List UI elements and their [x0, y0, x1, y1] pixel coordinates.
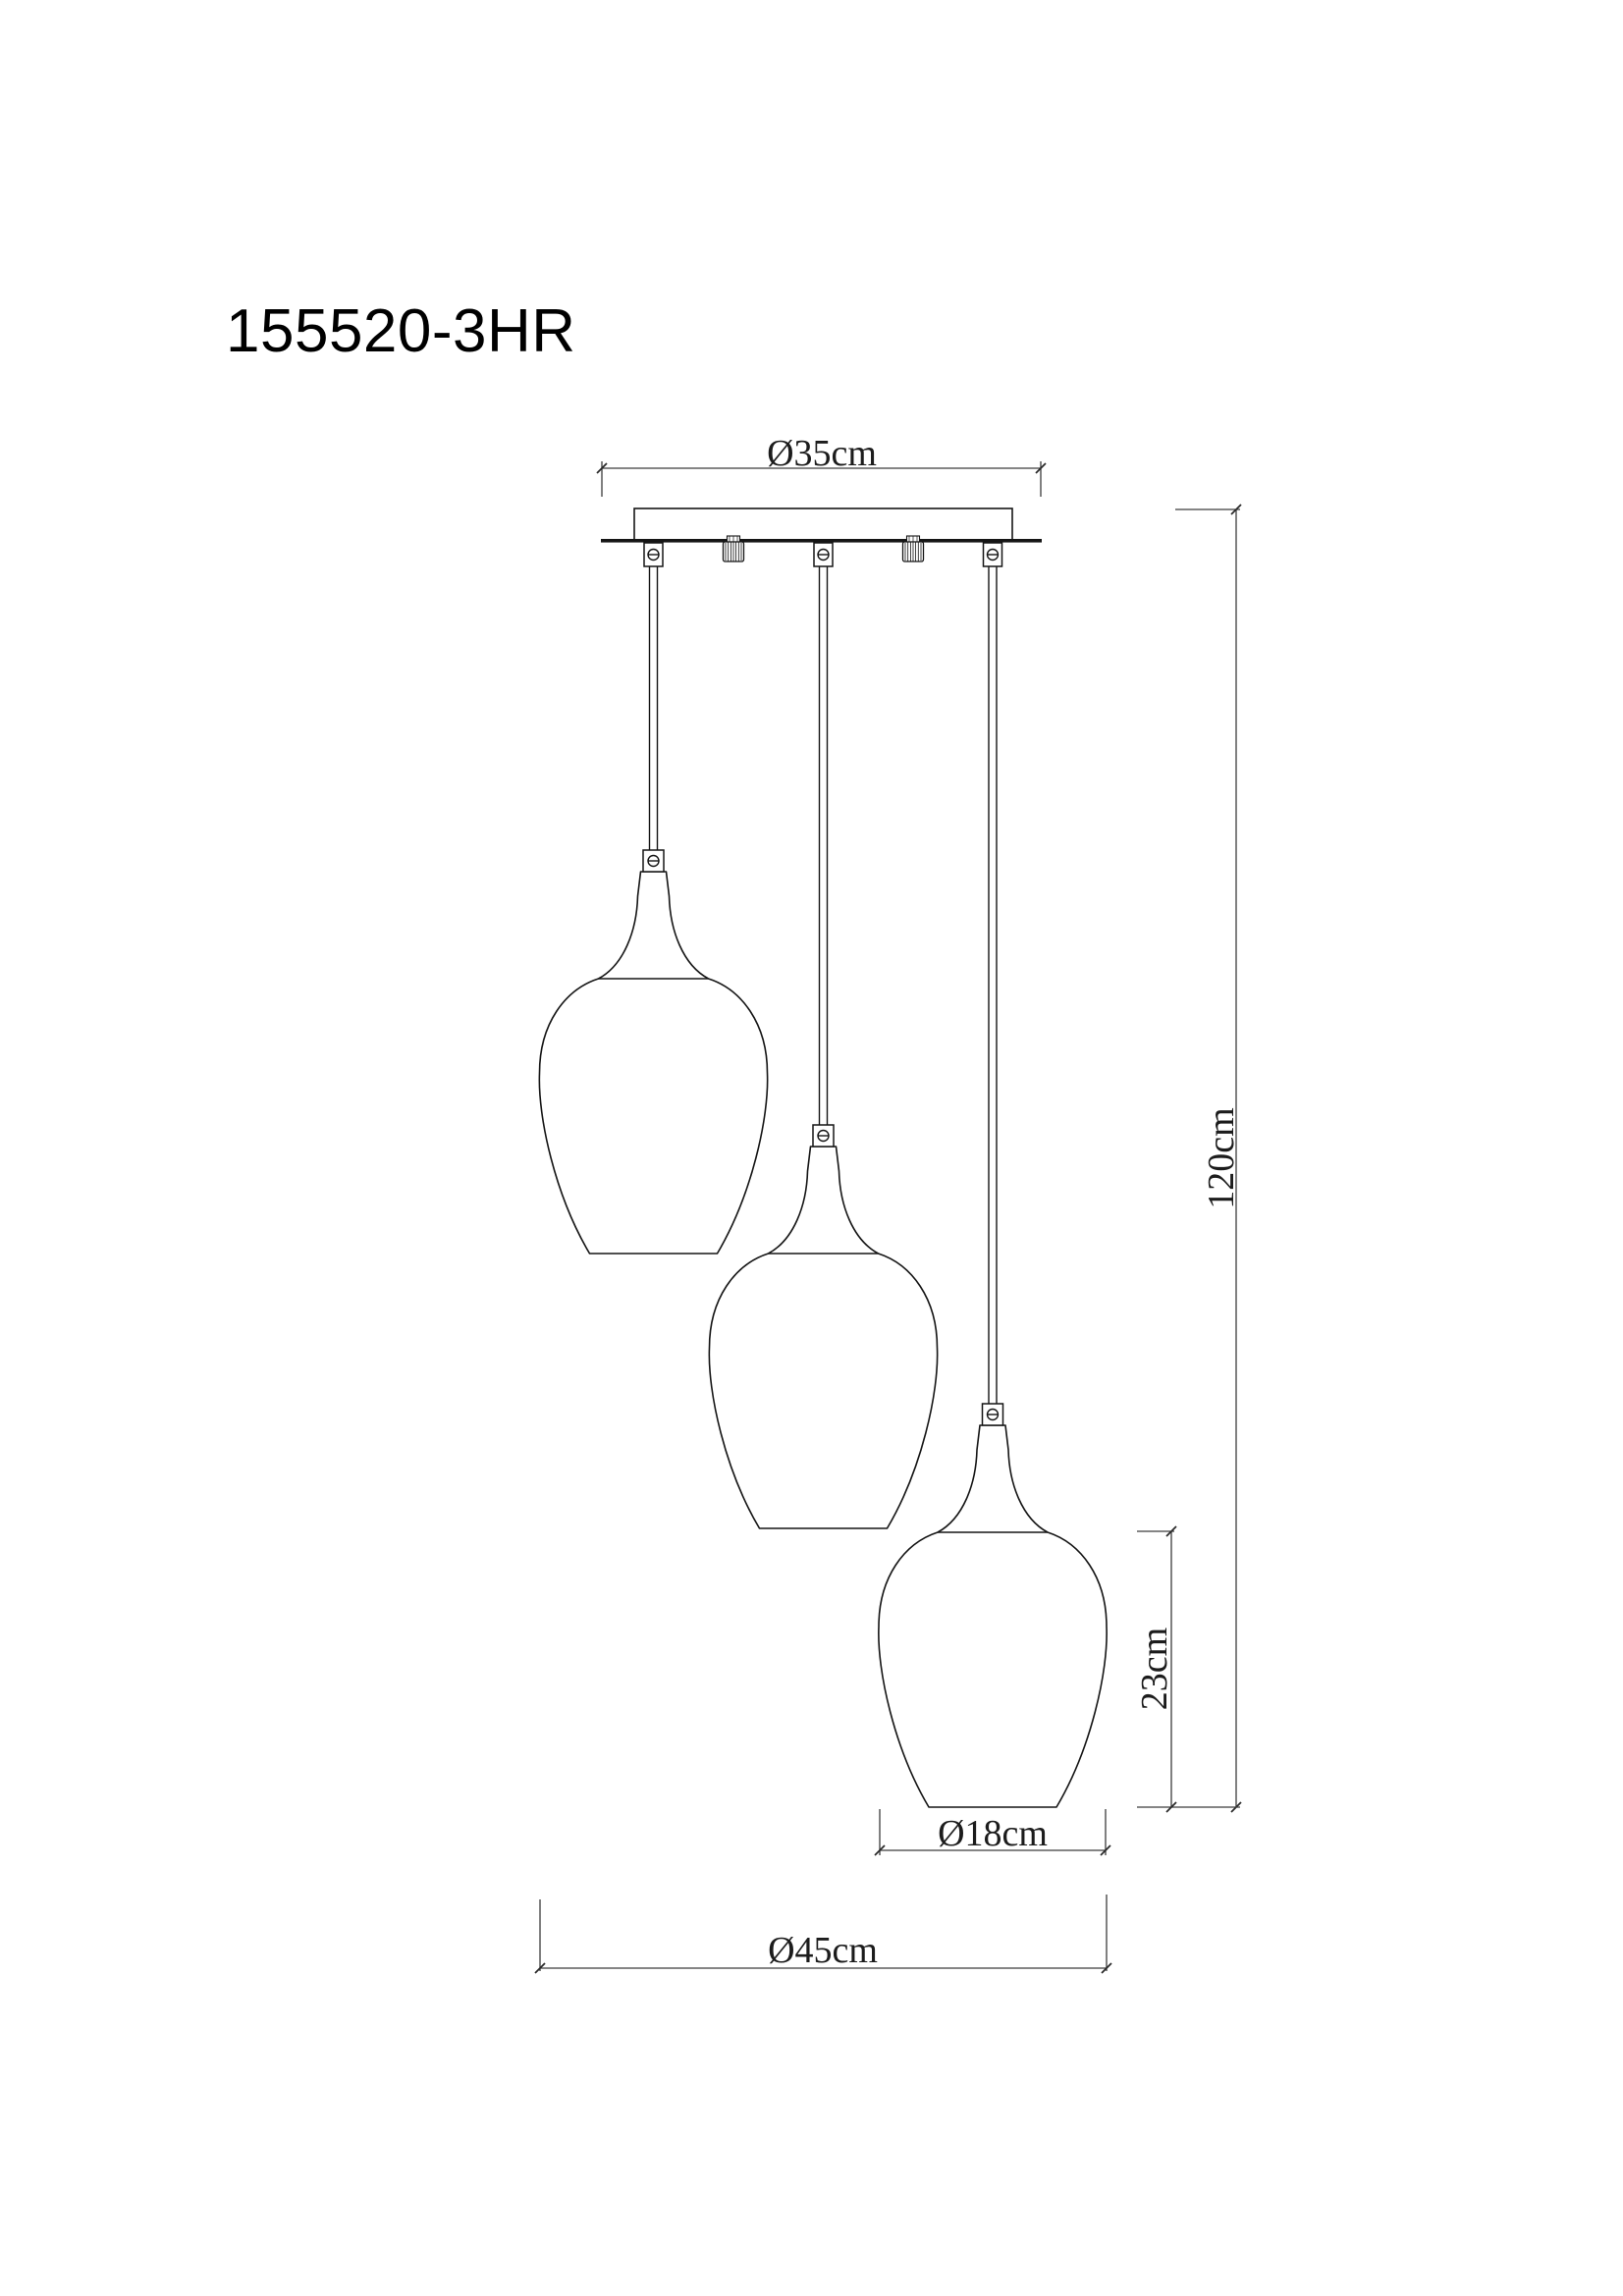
- cord-strain-relief-3: [984, 543, 1002, 566]
- cord-strain-relief-1: [644, 543, 663, 566]
- dim-total-height: [1175, 505, 1241, 1812]
- suspension-cord-2: [820, 566, 828, 1125]
- dim-shade-diameter: [875, 1809, 1110, 1855]
- pendant-light-drawing: [0, 0, 1623, 2296]
- ceiling-canopy: [601, 508, 1042, 543]
- dim-canopy-diameter: [597, 461, 1046, 497]
- dim-shade-height: [1137, 1526, 1240, 1812]
- suspension-cord-3: [989, 566, 997, 1404]
- cord-strain-relief-2: [814, 543, 833, 566]
- mounting-plate-edge: [601, 539, 1042, 543]
- dim-overall-diameter: [535, 1895, 1111, 1973]
- pendant-shade-1: [539, 850, 767, 1254]
- suspension-cord-1: [650, 566, 658, 850]
- technical-drawing-page: 155520-3HR Ø35cm 120cm 23cm Ø18cm Ø45cm: [0, 0, 1623, 2296]
